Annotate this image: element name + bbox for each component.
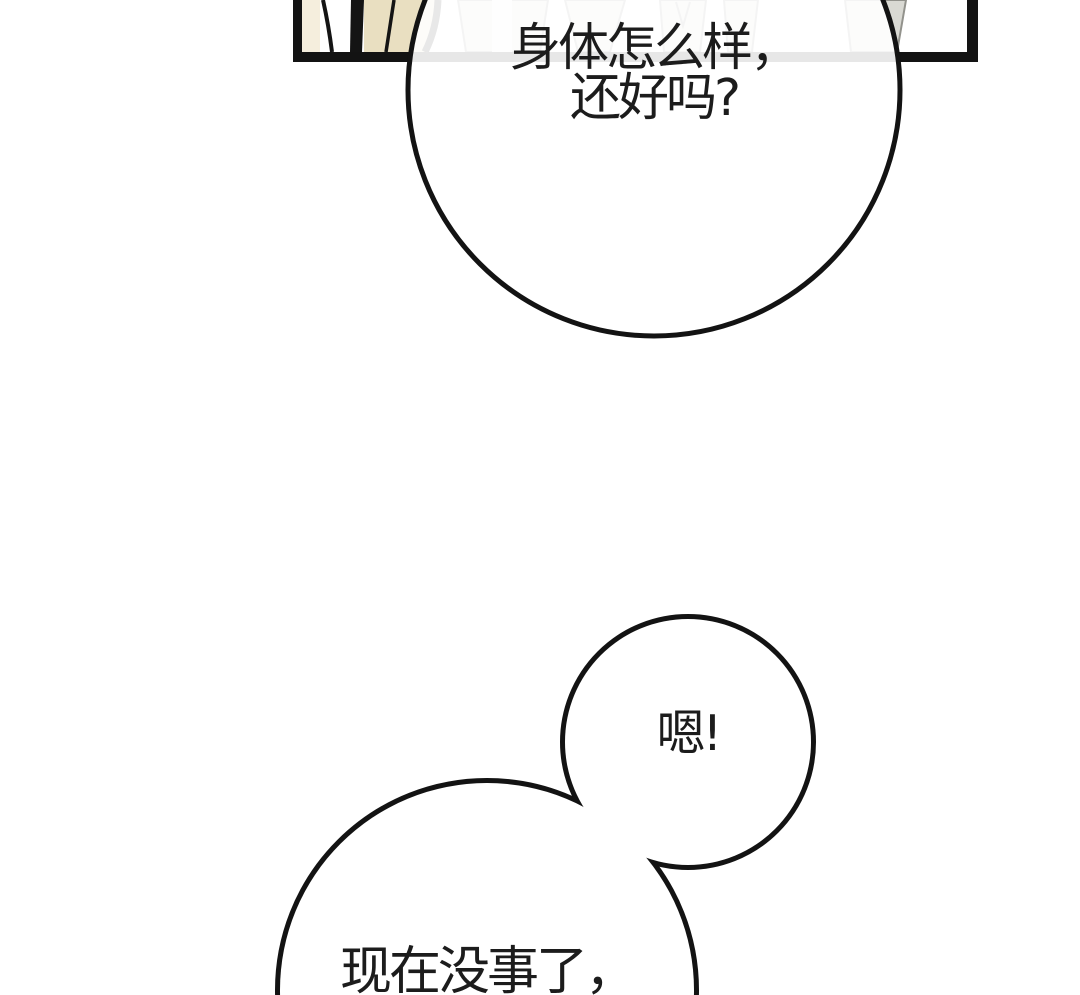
speech-bubble-merged-shapes: [280, 619, 811, 995]
speech-bubble-3-text: 现在没事了，: [237, 943, 737, 995]
comic-page: 身体怎么样， 还好吗? 嗯! 现在没事了，: [0, 0, 1080, 995]
speech-line: 嗯!: [588, 708, 788, 760]
comic-artwork: [0, 0, 1080, 995]
panel-border-right: [967, 0, 978, 62]
speech-line: 还好吗?: [404, 74, 904, 124]
speech-bubble-1-text: 身体怎么样， 还好吗?: [404, 24, 904, 124]
beige-strip: [302, 0, 320, 52]
speech-bubble-2-text: 嗯!: [588, 708, 788, 760]
speech-line: 身体怎么样，: [404, 24, 904, 74]
ink-line: [323, 0, 332, 52]
ink-bar: [350, 0, 364, 52]
speech-line: 现在没事了，: [237, 943, 737, 995]
panel-border-left: [293, 0, 303, 62]
